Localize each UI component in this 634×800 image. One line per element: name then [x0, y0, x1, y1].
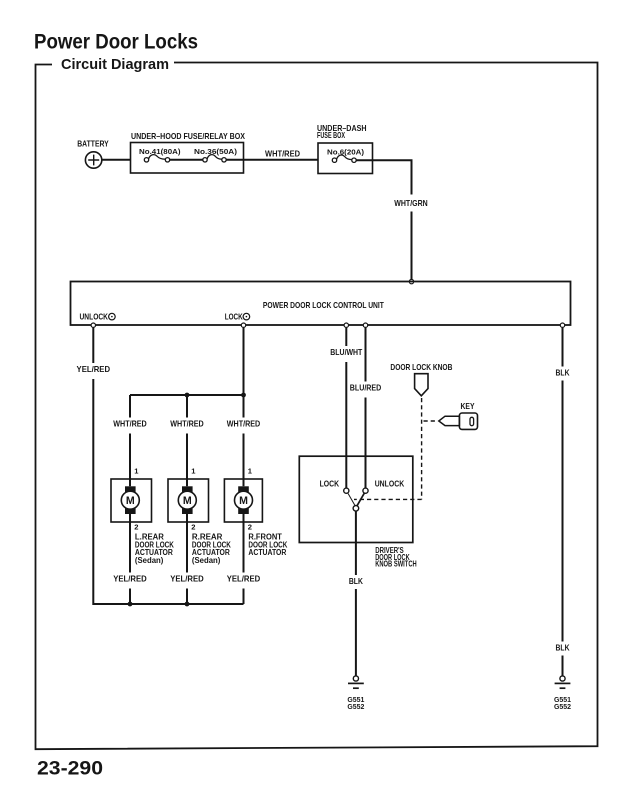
svg-text:UNLOCK: UNLOCK — [80, 311, 109, 321]
svg-text:YEL/RED: YEL/RED — [227, 574, 261, 584]
svg-text:BLK: BLK — [349, 576, 363, 586]
svg-text:(Sedan): (Sedan) — [135, 556, 164, 565]
svg-text:No.41(80A): No.41(80A) — [139, 147, 181, 156]
svg-text:Circuit Diagram: Circuit Diagram — [61, 57, 169, 73]
svg-text:BATTERY: BATTERY — [77, 139, 109, 149]
svg-text:WHT/RED: WHT/RED — [265, 149, 300, 159]
svg-text:No.6(20A): No.6(20A) — [327, 147, 364, 156]
svg-text:2: 2 — [191, 523, 195, 532]
svg-text:FUSE BOX: FUSE BOX — [317, 130, 345, 140]
svg-text:2: 2 — [248, 523, 252, 532]
svg-text:WHT/RED: WHT/RED — [113, 418, 147, 428]
svg-text:M: M — [239, 495, 248, 507]
svg-text:BLU/WHT: BLU/WHT — [330, 347, 362, 357]
svg-text:WHT/RED: WHT/RED — [170, 418, 204, 428]
svg-text:YEL/RED: YEL/RED — [77, 364, 111, 374]
svg-text:No.36(50A): No.36(50A) — [194, 147, 238, 156]
svg-text:M: M — [126, 495, 135, 507]
svg-text:BLU/RED: BLU/RED — [350, 382, 382, 392]
svg-text:M: M — [183, 495, 192, 507]
svg-text:G552: G552 — [347, 702, 364, 711]
svg-text:DOOR LOCK KNOB: DOOR LOCK KNOB — [390, 362, 452, 372]
svg-text:G552: G552 — [554, 702, 571, 711]
svg-text:YEL/RED: YEL/RED — [113, 574, 147, 584]
svg-text:YEL/RED: YEL/RED — [170, 574, 204, 584]
svg-text:BLK: BLK — [556, 642, 570, 652]
svg-text:BLK: BLK — [556, 367, 570, 377]
svg-text:ACTUATOR: ACTUATOR — [248, 548, 286, 557]
svg-text:LOCK: LOCK — [225, 311, 243, 321]
svg-text:UNDER–HOOD FUSE/RELAY BOX: UNDER–HOOD FUSE/RELAY BOX — [131, 131, 245, 141]
svg-text:POWER DOOR LOCK CONTROL UNIT: POWER DOOR LOCK CONTROL UNIT — [263, 300, 384, 310]
svg-text:UNLOCK: UNLOCK — [375, 479, 405, 489]
svg-text:WHT/GRN: WHT/GRN — [394, 198, 428, 208]
svg-text:2: 2 — [134, 523, 138, 532]
svg-text:WHT/RED: WHT/RED — [227, 418, 261, 428]
svg-text:KEY: KEY — [461, 401, 475, 411]
svg-text:Power Door Locks: Power Door Locks — [34, 30, 198, 54]
svg-text:LOCK: LOCK — [320, 479, 340, 489]
svg-text:23-290: 23-290 — [37, 757, 103, 779]
svg-text:KNOB SWITCH: KNOB SWITCH — [375, 560, 417, 569]
svg-text:(Sedan): (Sedan) — [192, 556, 221, 565]
